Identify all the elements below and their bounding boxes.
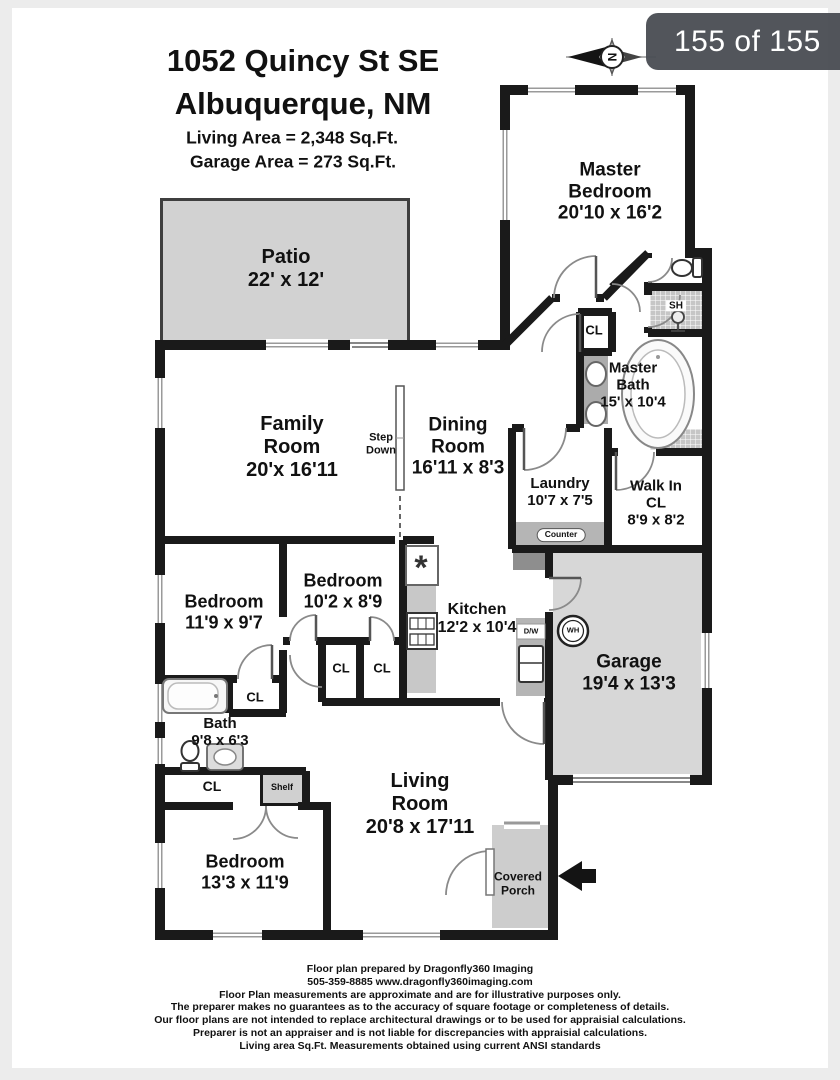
- photo-counter-badge: 155 of 155: [646, 13, 840, 70]
- dishwasher-label: D/W: [524, 628, 539, 637]
- footer-line: The preparer makes no guarantees as to t…: [50, 1001, 790, 1014]
- step-down-label: Step Down: [360, 431, 402, 456]
- footer-disclaimer: Floor plan prepared by Dragonfly360 Imag…: [50, 963, 790, 1053]
- stove-icon: [407, 613, 437, 649]
- room-label-master-bath: Master Bath15' x 10'4: [600, 359, 666, 410]
- counter-label: Counter: [537, 528, 586, 542]
- shower-label: SH: [666, 300, 686, 311]
- kitchen-sink-icon: *: [406, 546, 438, 587]
- footer-line: 505-359-8885 www.dragonfly360imaging.com: [50, 976, 790, 989]
- room-label-walk-in-closet: Walk In CL8'9 x 8'2: [627, 477, 685, 528]
- floor-plan-drawing: N: [0, 0, 840, 1080]
- room-label-covered-porch: Covered Porch: [491, 870, 546, 897]
- closet-label-tub: CL: [246, 691, 263, 706]
- closet-label-b: CL: [373, 662, 390, 677]
- photo-viewer-page: 155 of 155 1052 Quincy St SE Albuquerque…: [0, 0, 840, 1080]
- closet-label-master-hall: CL: [585, 324, 602, 339]
- entry-arrow-icon: [558, 861, 596, 891]
- refrigerator-icon: [519, 646, 543, 682]
- living-area-text: Living Area = 2,348 Sq.Ft.: [186, 128, 398, 149]
- room-label-garage: Garage19'4 x 13'3: [582, 651, 676, 694]
- shelf-label: Shelf: [271, 782, 293, 792]
- room-label-bedroom-mid: Bedroom10'2 x 8'9: [303, 570, 382, 611]
- step-down-rail: [396, 386, 404, 538]
- room-label-patio: Patio22' x 12': [248, 246, 324, 292]
- garage-area-text: Garage Area = 273 Sq.Ft.: [190, 152, 396, 173]
- room-label-bedroom-mid-left: Bedroom11'9 x 9'7: [184, 591, 263, 632]
- room-label-dining-room: Dining Room16'11 x 8'3: [412, 415, 505, 480]
- room-label-living-room: Living Room20'8 x 17'11: [366, 770, 475, 838]
- room-label-master-bedroom: Master Bedroom20'10 x 16'2: [558, 160, 662, 225]
- compass-letter: N: [606, 53, 620, 62]
- footer-line: Floor plan prepared by Dragonfly360 Imag…: [50, 963, 790, 976]
- room-label-bath: Bath9'8 x 6'3: [191, 715, 248, 749]
- footer-line: Our floor plans are not intended to repl…: [50, 1014, 790, 1027]
- compass-icon: N: [566, 38, 656, 76]
- address-line-2: Albuquerque, NM: [175, 86, 432, 122]
- closet-label-a: CL: [332, 662, 349, 677]
- room-label-laundry: Laundry10'7 x 7'5: [527, 475, 593, 509]
- closet-label-hall: CL: [203, 779, 222, 795]
- room-label-bedroom-front: Bedroom13'3 x 11'9: [201, 851, 289, 892]
- address-line-1: 1052 Quincy St SE: [167, 43, 439, 79]
- svg-text:*: *: [414, 549, 428, 587]
- footer-line: Preparer is not an appraiser and is not …: [50, 1027, 790, 1040]
- bathtub2-icon: [163, 679, 227, 713]
- toilet-icon: [672, 258, 702, 277]
- room-label-family-room: Family Room20'x 16'11: [246, 413, 338, 481]
- room-label-kitchen: Kitchen12'2 x 10'4: [438, 601, 517, 637]
- water-heater-label: WH: [567, 627, 580, 636]
- footer-line: Floor Plan measurements are approximate …: [50, 989, 790, 1002]
- footer-line: Living area Sq.Ft. Measurements obtained…: [50, 1040, 790, 1053]
- shower-head-icon: [671, 311, 685, 331]
